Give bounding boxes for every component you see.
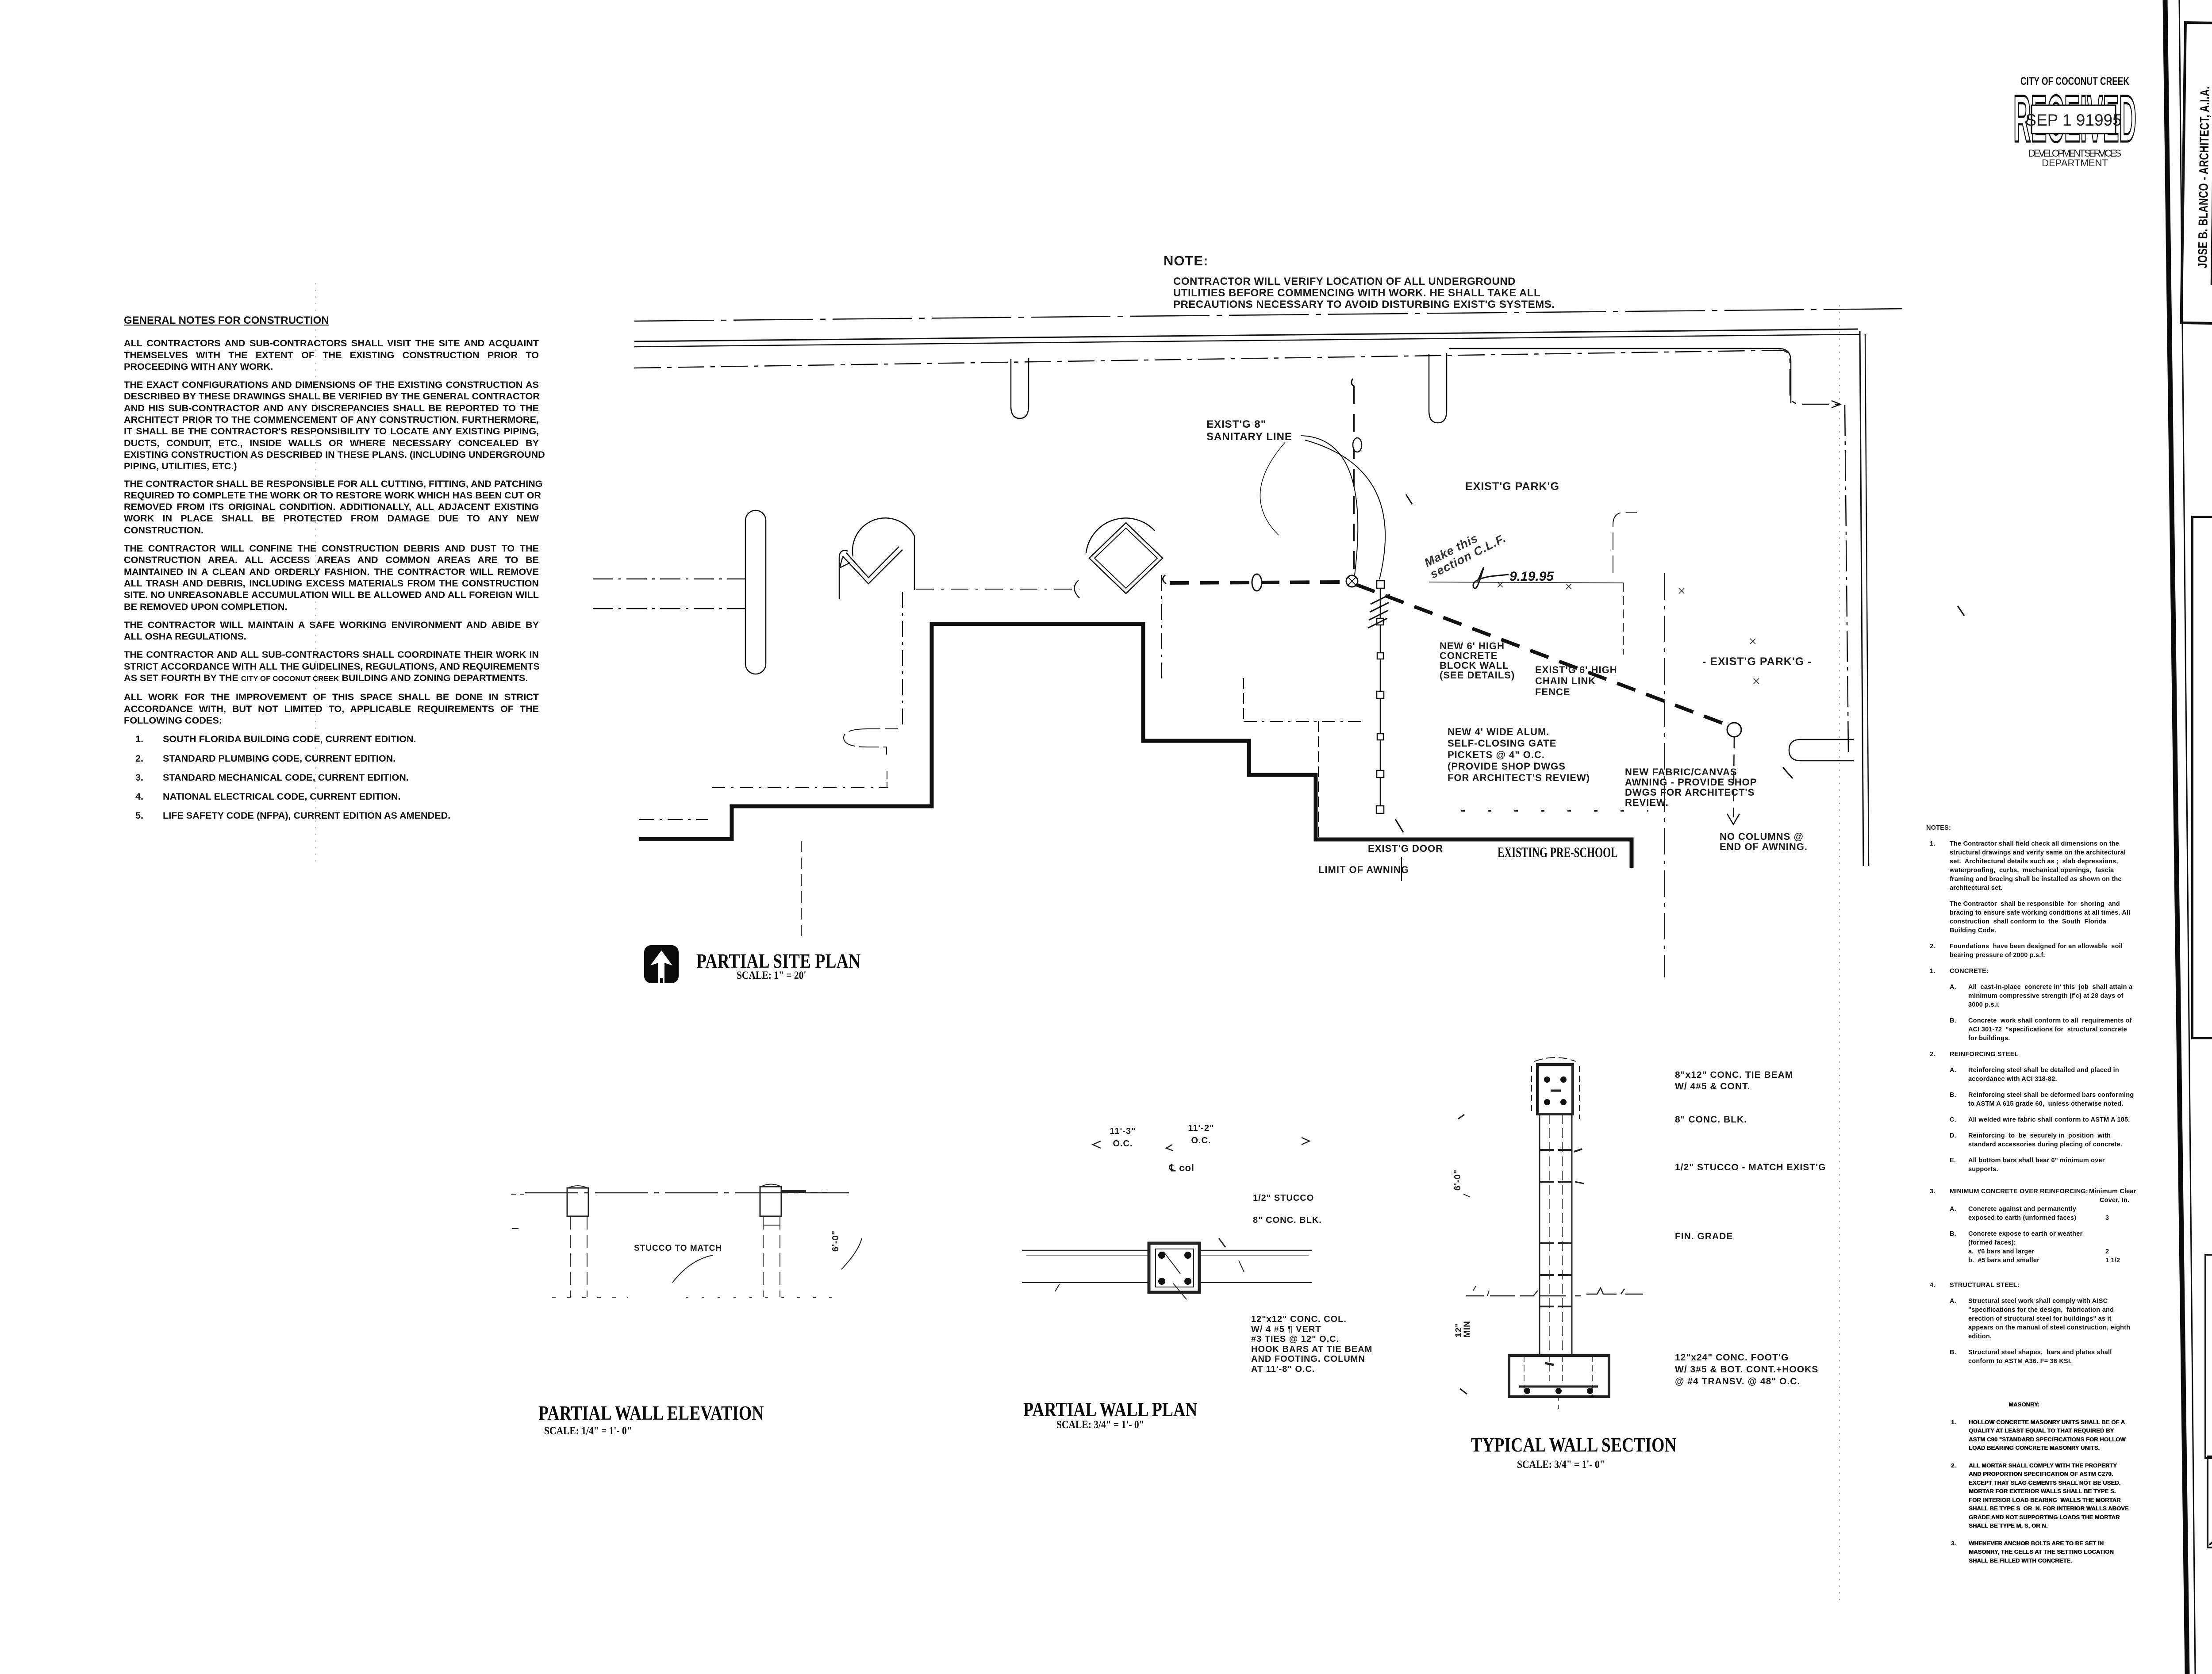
svg-text:9.19.95: 9.19.95	[1509, 569, 1554, 584]
svg-text:SEP 1 91995: SEP 1 91995	[2025, 111, 2121, 129]
svg-text:DEPARTMENT: DEPARTMENT	[2042, 157, 2108, 169]
